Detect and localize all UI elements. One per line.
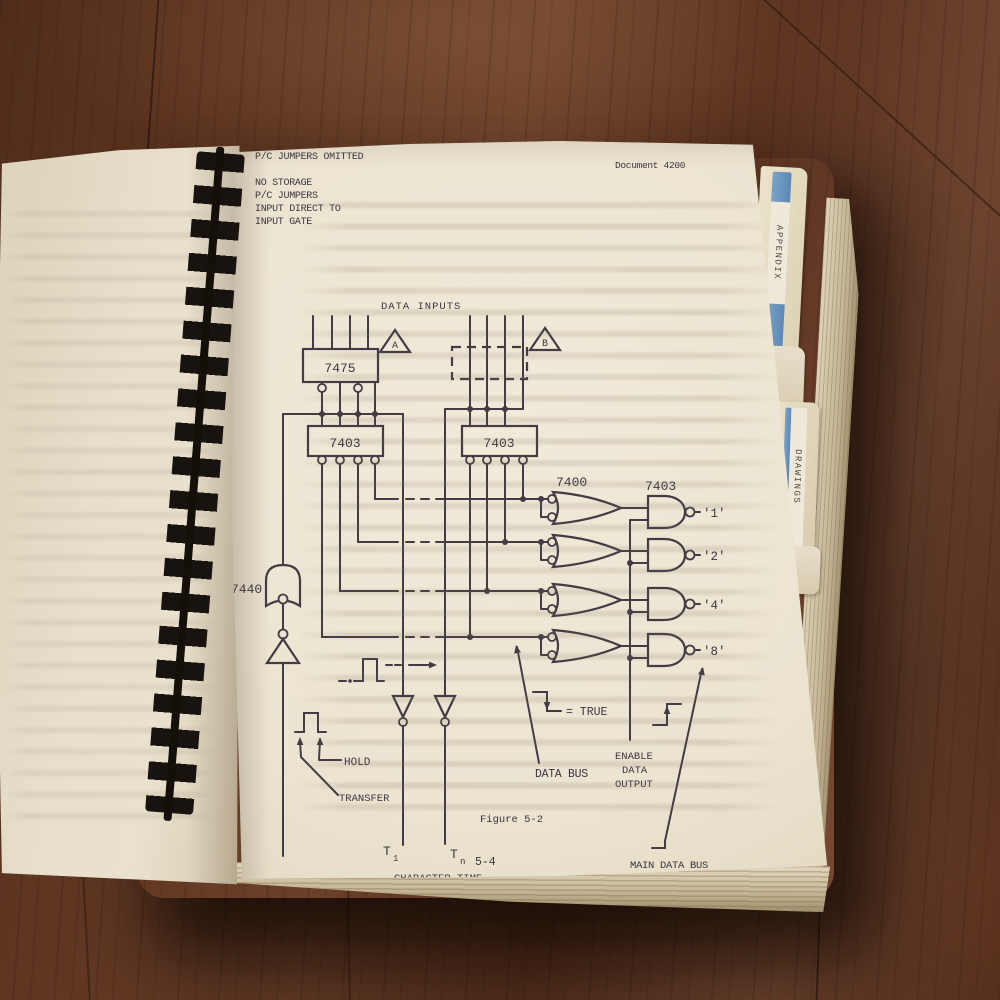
enable-label-1: ENABLE [615, 751, 653, 763]
data-bus-label: DATA BUS [535, 768, 588, 781]
legend-line: P/C JUMPERS OMITTED [255, 152, 363, 163]
legend-row-a: A STORAGE INSTALLED P/C JUMPERS OMITTED [228, 138, 832, 164]
variant-a-marker: A [380, 330, 410, 352]
true-label: = TRUE [566, 706, 608, 719]
legend-line: P/C JUMPERS [255, 191, 318, 202]
enable-edge-waveform [653, 704, 681, 725]
legend: A STORAGE INSTALLED P/C JUMPERS OMITTED … [228, 138, 832, 229]
tn-subscript: n [460, 857, 465, 867]
legend-text-a: STORAGE INSTALLED P/C JUMPERS OMITTED [255, 138, 363, 164]
omitted-storage-dashed-box [452, 347, 527, 379]
photo-scene: APPENDIX DRAWINGS Document 4200 A STORAG… [0, 0, 1000, 1000]
wood-seam [146, 0, 160, 159]
ic-label-7475: 7475 [324, 361, 355, 376]
ic-label-7403-out: 7403 [645, 479, 676, 494]
t1-subscript: 1 [393, 854, 398, 864]
page-number: 5-4 [475, 856, 496, 869]
enable-label-2: DATA [622, 765, 648, 777]
strobe-pulse-waveform [339, 659, 437, 683]
ic-7403-right: 7403 [462, 426, 537, 464]
enable-label-3: OUTPUT [615, 779, 653, 791]
bus-junction-dots [467, 496, 526, 640]
bus-routing-lines [322, 464, 541, 637]
character-time-buffers [393, 409, 455, 845]
marker-b-text: B [542, 339, 548, 350]
ic-label-7400: 7400 [556, 475, 587, 490]
ic-label-7403-right: 7403 [483, 436, 514, 451]
gates-7403-output [621, 496, 700, 740]
legend-line: INPUT GATE [255, 217, 312, 228]
data-bus-arrow [514, 645, 539, 763]
main-data-bus-label: MAIN DATA BUS [630, 860, 708, 872]
ic-label-7403-left: 7403 [329, 436, 360, 451]
data-input-lines-right [470, 316, 523, 426]
document-header: Document 4200 [615, 160, 685, 171]
latch-7475: 7475 [303, 349, 378, 414]
figure-caption: Figure 5-2 [480, 814, 543, 826]
main-data-bus-arrow [652, 667, 705, 848]
variant-b-marker: B [530, 328, 560, 350]
legend-line: STORAGE INSTALLED [255, 139, 352, 150]
tn-label: T [450, 847, 458, 862]
legend-line: NO STORAGE [255, 178, 312, 189]
t1-label: T [383, 844, 391, 859]
transfer-label: TRANSFER [339, 793, 390, 805]
data-inputs-label: DATA INPUTS [381, 301, 461, 313]
tab-appendix-label: APPENDIX [766, 201, 790, 304]
wood-seam [82, 876, 91, 1000]
marker-a-text: A [392, 341, 398, 352]
showthrough-text [298, 193, 778, 823]
hold-transfer-waveform [295, 713, 341, 795]
data-input-lines-left [313, 316, 368, 349]
output-label-8: '8' [703, 645, 726, 659]
output-label-4: '4' [703, 599, 726, 613]
hold-label: HOLD [344, 757, 371, 769]
output-label-2: '2' [703, 550, 726, 564]
ic-7403-left: 7403 [308, 426, 383, 464]
tab-blue-stripe [771, 172, 792, 203]
ic-label-7440: 7440 [231, 582, 262, 597]
legend-line: INPUT DIRECT TO [255, 204, 341, 215]
gates-7400 [538, 492, 621, 662]
input-tie-lines [283, 406, 523, 426]
true-edge-waveform [533, 692, 561, 711]
inverter-up [267, 639, 299, 663]
gate-7440: 7440 [231, 414, 300, 856]
right-page: Document 4200 A STORAGE INSTALLED P/C JU… [228, 138, 832, 882]
legend-row-b: B NO STORAGE P/C JUMPERS INPUT DIRECT TO… [228, 177, 832, 229]
wood-seam [347, 884, 351, 1000]
legend-text-b: NO STORAGE P/C JUMPERS INPUT DIRECT TO I… [255, 177, 341, 229]
output-label-1: '1' [703, 507, 726, 521]
